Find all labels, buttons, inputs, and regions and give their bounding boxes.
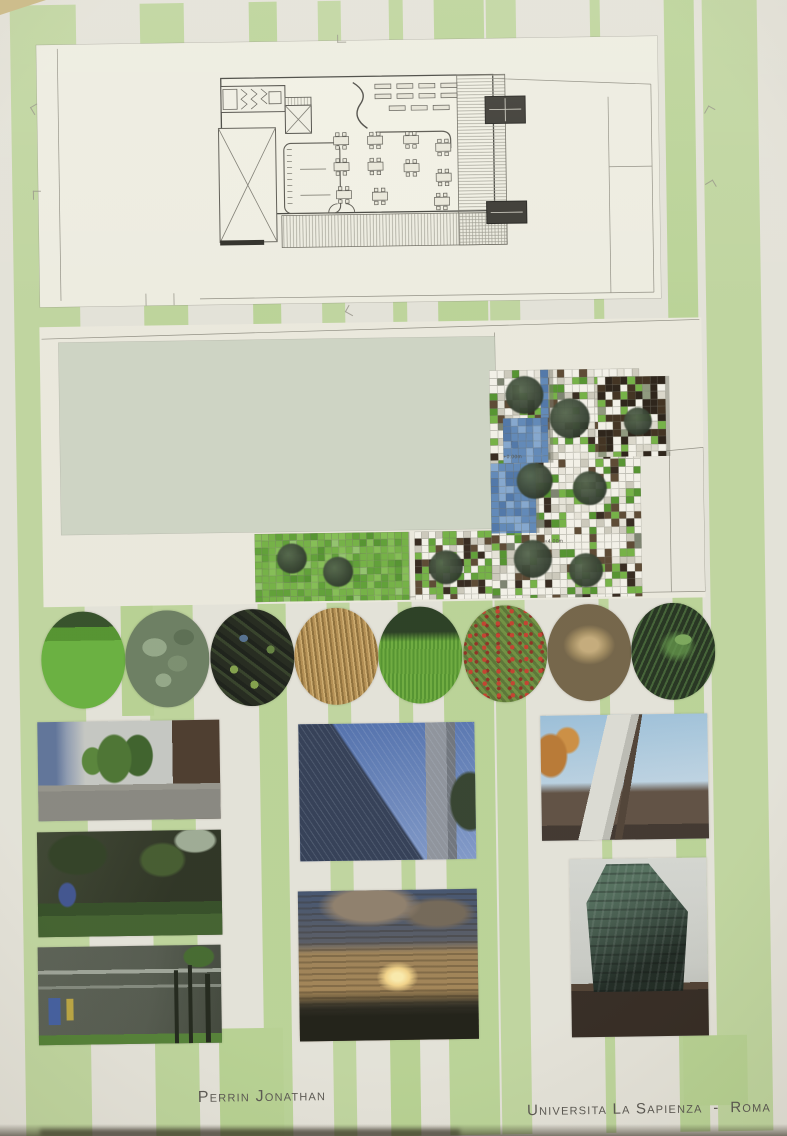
mosaic-tile [560,579,568,587]
photo-glass-building-sunset [298,889,479,1042]
swatch-wheat [294,607,379,705]
mosaic-tile [627,376,635,384]
mosaic-tile [559,564,567,572]
mosaic-tile [503,441,511,449]
mosaic-tile [558,437,566,445]
mosaic-tile [497,400,505,408]
mosaic-tile [498,493,506,501]
mosaic-tile [619,541,627,549]
mosaic-tile [574,504,582,512]
mosaic-tile [650,399,658,407]
mosaic-tile [579,392,587,400]
mosaic-tile [651,451,659,457]
mosaic-tile [627,533,635,541]
mosaic-tile [581,512,589,520]
mosaic-tile [529,515,537,523]
mosaic-tile [598,414,606,422]
mosaic-tile [618,459,626,467]
mosaic-tile [567,542,575,550]
mosaic-tile [559,504,567,512]
mosaic-tile [573,459,581,467]
mosaic-tile [521,515,529,523]
drafting-mark [345,305,357,316]
mosaic-tile [566,527,574,535]
mosaic-tile [611,504,619,512]
mosaic-tile [604,511,612,519]
stair-elevator-core [285,97,312,133]
mosaic-tile [506,523,514,531]
mosaic-tile [605,377,613,385]
mosaic-tile [514,508,522,516]
mosaic-tile [552,572,560,580]
mosaic-tile [506,493,514,501]
mosaic-tile [633,466,641,474]
mosaic-tile [633,481,641,489]
mosaic-tile [492,535,500,543]
mosaic-tile [588,451,596,459]
mosaic-tile [580,459,588,467]
mosaic-tile [605,414,613,422]
mosaic-tile [612,579,620,587]
mosaic-tile [613,399,621,407]
mosaic-tile [500,588,508,596]
mosaic-tile [619,504,627,512]
mosaic-tile [612,377,620,385]
mosaic-tile [627,556,635,564]
mosaic-tile [529,508,537,516]
mosaic-tile [604,534,612,542]
mosaic-tile [521,523,529,531]
mosaic-tile [619,556,627,564]
mosaic-tile [587,429,595,437]
mosaic-tile [603,466,611,474]
mosaic-tile [558,474,566,482]
mosaic-tile [643,399,651,407]
mosaic-tile [565,444,573,452]
mosaic-tile [573,444,581,452]
mosaic-tile [541,415,549,418]
mosaic-tile [499,543,507,551]
mosaic-tile [557,369,565,377]
mosaic-tile [506,501,514,509]
mosaic-tile [557,384,565,392]
mosaic-tile [506,531,514,534]
mosaic-tile [491,523,499,531]
threshold-bar [220,240,264,246]
mosaic-tile [533,425,541,433]
mosaic-tile [605,422,613,430]
mosaic-tile [533,455,541,463]
mosaic-tile [567,534,575,542]
mosaic-tile [658,421,666,429]
mosaic-tile [522,587,530,595]
wc-block [221,86,285,113]
mosaic-tile [626,526,634,534]
mosaic-tile [633,473,641,481]
mosaic-tile [506,486,514,494]
mosaic-tile [618,481,626,489]
mosaic-tile [634,556,642,564]
mosaic-tile [603,459,611,467]
mosaic-tile [511,433,519,441]
mosaic-tile [612,534,620,542]
mosaic-tile [507,573,515,581]
mosaic-tile [497,385,505,393]
mosaic-tile [526,448,534,456]
mosaic-tile [499,531,507,534]
mosaic-tile [606,437,614,445]
render-courtyard-terrace-trees [37,720,220,822]
green-stripe-segment [390,1026,422,1136]
mosaic-tile [540,370,548,378]
mosaic-tile [490,430,498,438]
mosaic-tile [514,531,522,534]
mosaic-tile [522,580,530,588]
mosaic-tile [533,440,541,448]
mosaic-tile [634,563,642,571]
mosaic-tile [566,467,574,475]
mosaic-tile [626,496,634,504]
author-name: Perrin Jonathan [198,1085,334,1108]
mosaic-tile [503,426,511,434]
mosaic-tile [636,444,644,452]
photo-tilted-glass-facade [298,722,476,862]
mosaic-tile [492,573,500,581]
mosaic-tile [651,436,659,444]
floor-plan-panel [36,36,661,307]
mosaic-tile [658,443,666,451]
mosaic-tile [588,459,596,467]
level-label: +4.00m [545,538,564,544]
mosaic-tile [498,463,506,471]
mosaic-tile [581,504,589,512]
mosaic-tile [611,466,619,474]
mosaic-tile [552,587,560,595]
mosaic-tile [643,436,651,444]
mosaic-tile [597,586,605,594]
green-stripe-pattern [0,0,779,6]
mosaic-tile [650,384,658,392]
mosaic-tile [564,377,572,385]
level-label: +0.00m [503,454,522,460]
mosaic-tile [627,548,635,556]
mosaic-tile [635,391,643,399]
mosaic-tile [503,433,511,441]
mosaic-tile [633,458,641,466]
mosaic-tile [605,571,613,579]
mosaic-tile [605,399,613,407]
mosaic-tile [635,578,643,586]
mosaic-tile [604,556,612,564]
mosaic-tile [499,516,507,524]
poster-sheet: +0.00m+4.00m Perrin Jonathan Laboratorio… [0,0,787,1136]
mosaic-tile [559,519,567,527]
mosaic-tile [612,384,620,392]
mosaic-tile [619,511,627,519]
mosaic-tile [612,549,620,557]
mosaic-tile [526,440,534,448]
mosaic-tile [500,573,508,581]
mosaic-tile [540,418,548,426]
mosaic-tile [604,526,612,534]
mosaic-tile [558,452,566,460]
mosaic-tile [612,392,620,400]
mosaic-tile [541,455,549,463]
mosaic-tile [597,549,605,557]
mosaic-tile [605,586,613,594]
mosaic-tile [587,369,595,377]
mosaic-tile [618,496,626,504]
green-stripe [702,0,774,1131]
mosaic-tile [618,466,626,474]
mosaic-tile [619,564,627,572]
mosaic-tile [611,519,619,527]
mosaic-tile [525,425,533,433]
mosaic-tile [604,564,612,572]
mosaic-tile [598,444,606,452]
mosaic-tile [537,580,545,588]
mosaic-tile [627,563,635,571]
mosaic-tile [582,534,590,542]
mosaic-tile [490,415,498,423]
mosaic-tile [559,557,567,565]
mosaic-tile [642,376,650,384]
mosaic-tile [620,586,628,594]
mosaic-tile [552,557,560,565]
mosaic-tile [541,440,549,448]
mosaic-tile [613,437,621,445]
photo-faceted-glass-tower [569,857,709,1037]
mosaic-tile [628,444,636,452]
mosaic-tile [574,534,582,542]
mosaic-tile [612,541,620,549]
mosaic-tile [611,489,619,497]
floor-plan-drawing [36,36,661,307]
mosaic-tile [558,482,566,490]
mosaic-tile [507,580,515,588]
mosaic-tile [518,433,526,441]
mosaic-tile [604,504,612,512]
mosaic-tile [490,438,498,446]
mosaic-tile [499,550,507,558]
mosaic-tile [559,549,567,557]
swatch-lawn [41,611,126,709]
mosaic-tile [651,444,659,452]
mosaic-tile [587,377,595,385]
mosaic-tile [489,378,497,386]
mosaic-tile [545,572,553,580]
mosaic-tile [500,595,508,598]
mosaic-tile [558,459,566,467]
mosaic-tile [612,556,620,564]
mosaic-tile [590,586,598,594]
mosaic-tile [514,523,522,531]
mosaic-tile [589,541,597,549]
mosaic-tile [545,587,553,595]
mosaic-tile [567,549,575,557]
mosaic-tile [650,429,658,437]
mosaic-tile [498,486,506,494]
mosaic-tile [596,519,604,527]
mosaic-tile [551,520,559,528]
mosaic-tile [558,497,566,505]
mosaic-tile [657,391,665,399]
mosaic-tile [507,543,515,551]
university-name: Universita La Sapienza - Roma [527,1096,782,1121]
mosaic-tile [533,433,541,441]
mosaic-tile [598,452,606,457]
mosaic-tile [533,448,541,456]
mosaic-tile [606,452,614,457]
mosaic-tile [491,493,499,501]
mosaic-tile [499,508,507,516]
mosaic-tile [603,496,611,504]
mosaic-tile [491,508,499,516]
mosaic-tile [557,377,565,385]
mosaic-tile [492,558,500,566]
mosaic-tile [582,542,590,550]
mosaic-tile [605,384,613,392]
mosaic-tile [552,550,560,558]
mosaic-tile [597,377,605,385]
mosaic-tile [491,486,499,494]
swatch-feather-grass [547,603,632,701]
mosaic-tile [636,436,644,444]
mosaic-tile [626,473,634,481]
mosaic-tile [529,523,537,531]
mosaic-tile [620,392,628,400]
mosaic-tile [558,444,566,452]
mosaic-tile [504,370,512,378]
mosaic-tile [612,586,620,594]
mosaic-tile [491,501,499,509]
mosaic-tile [596,504,604,512]
mosaic-tile [596,526,604,534]
mosaic-tile [626,518,634,526]
mosaic-tile [499,523,507,531]
mosaic-tile [490,463,498,471]
mosaic-tile [657,383,665,391]
mosaic-tile [579,369,587,377]
mosaic-tile [627,578,635,586]
mosaic-tile [544,520,552,528]
mosaic-tile [507,588,515,596]
mosaic-tile [566,504,574,512]
mosaic-tile [510,418,518,426]
mosaic-tile [627,391,635,399]
mosaic-tile [492,550,500,558]
mosaic-tile [628,451,636,457]
mosaic-tile [507,595,515,598]
mosaic-tile [518,441,526,449]
mosaic-tile [491,516,499,524]
mosaic-tile [551,497,559,505]
mosaic-tile [551,505,559,513]
mosaic-tile [503,418,511,426]
mosaic-tile [544,505,552,513]
mosaic-tile [650,376,658,384]
mosaic-tile [565,452,573,460]
mosaic-tile [580,437,588,445]
mosaic-tile [589,534,597,542]
mosaic-tile [621,452,629,457]
mosaic-tile [497,408,505,416]
mosaic-tile [551,467,559,475]
mosaic-tile [514,501,522,509]
mosaic-tile [658,428,666,436]
mosaic-tile [541,448,549,456]
mosaic-tile [621,437,629,445]
mosaic-tile [551,490,559,498]
mosaic-tile [628,436,636,444]
mosaic-tile [492,588,500,596]
mosaic-tile [634,518,642,526]
mosaic-tile [594,369,602,377]
mosaic-tile [634,533,642,541]
mosaic-tile [598,429,606,437]
mosaic-tile [604,541,612,549]
mosaic-tile [589,511,597,519]
mosaic-tile [551,527,559,535]
mosaic-tile [497,378,505,386]
mosaic-tile [500,580,508,588]
site-plan-panel: +0.00m+4.00m [39,317,705,607]
mosaic-tile [564,369,572,377]
mosaic-tile [595,459,603,467]
mosaic-tile [605,579,613,587]
mosaic-tile [525,418,533,426]
mosaic-tile [541,407,549,415]
mosaic-tile [515,588,523,596]
mosaic-tile [613,452,621,457]
mosaic-tile [491,471,499,479]
mosaic-tile [498,478,506,486]
mosaic-tile [506,478,514,486]
mosaic-tile [589,504,597,512]
mosaic-tile [533,418,541,426]
mosaic-tile [498,471,506,479]
mosaic-tile [618,489,626,497]
mosaic-tile [613,444,621,452]
mosaic-tile [611,511,619,519]
mosaic-tile [597,534,605,542]
mosaic-tile [573,452,581,460]
mosaic-tile [625,458,633,466]
mosaic-tile [587,399,595,407]
mosaic-tile [574,519,582,527]
mosaic-tile [537,587,545,595]
mosaic-tile [489,393,497,401]
mosaic-tile [580,452,588,460]
mosaic-tile [627,541,635,549]
mosaic-tile [543,497,551,505]
mosaic-tile [635,571,643,579]
mosaic-tile [587,392,595,400]
mosaic-tile [658,436,666,444]
mosaic-tile [579,377,587,385]
mosaic-tile [489,370,497,378]
mosaic-tile [499,535,507,543]
mosaic-tile [521,508,529,516]
mosaic-tile [619,519,627,527]
mosaic-tile [633,488,641,496]
mosaic-tile [521,500,529,508]
drafting-mark [33,191,41,200]
mosaic-tile [560,572,568,580]
mosaic-tile [507,535,515,543]
mosaic-tile [597,384,605,392]
mosaic-tile [490,408,498,416]
